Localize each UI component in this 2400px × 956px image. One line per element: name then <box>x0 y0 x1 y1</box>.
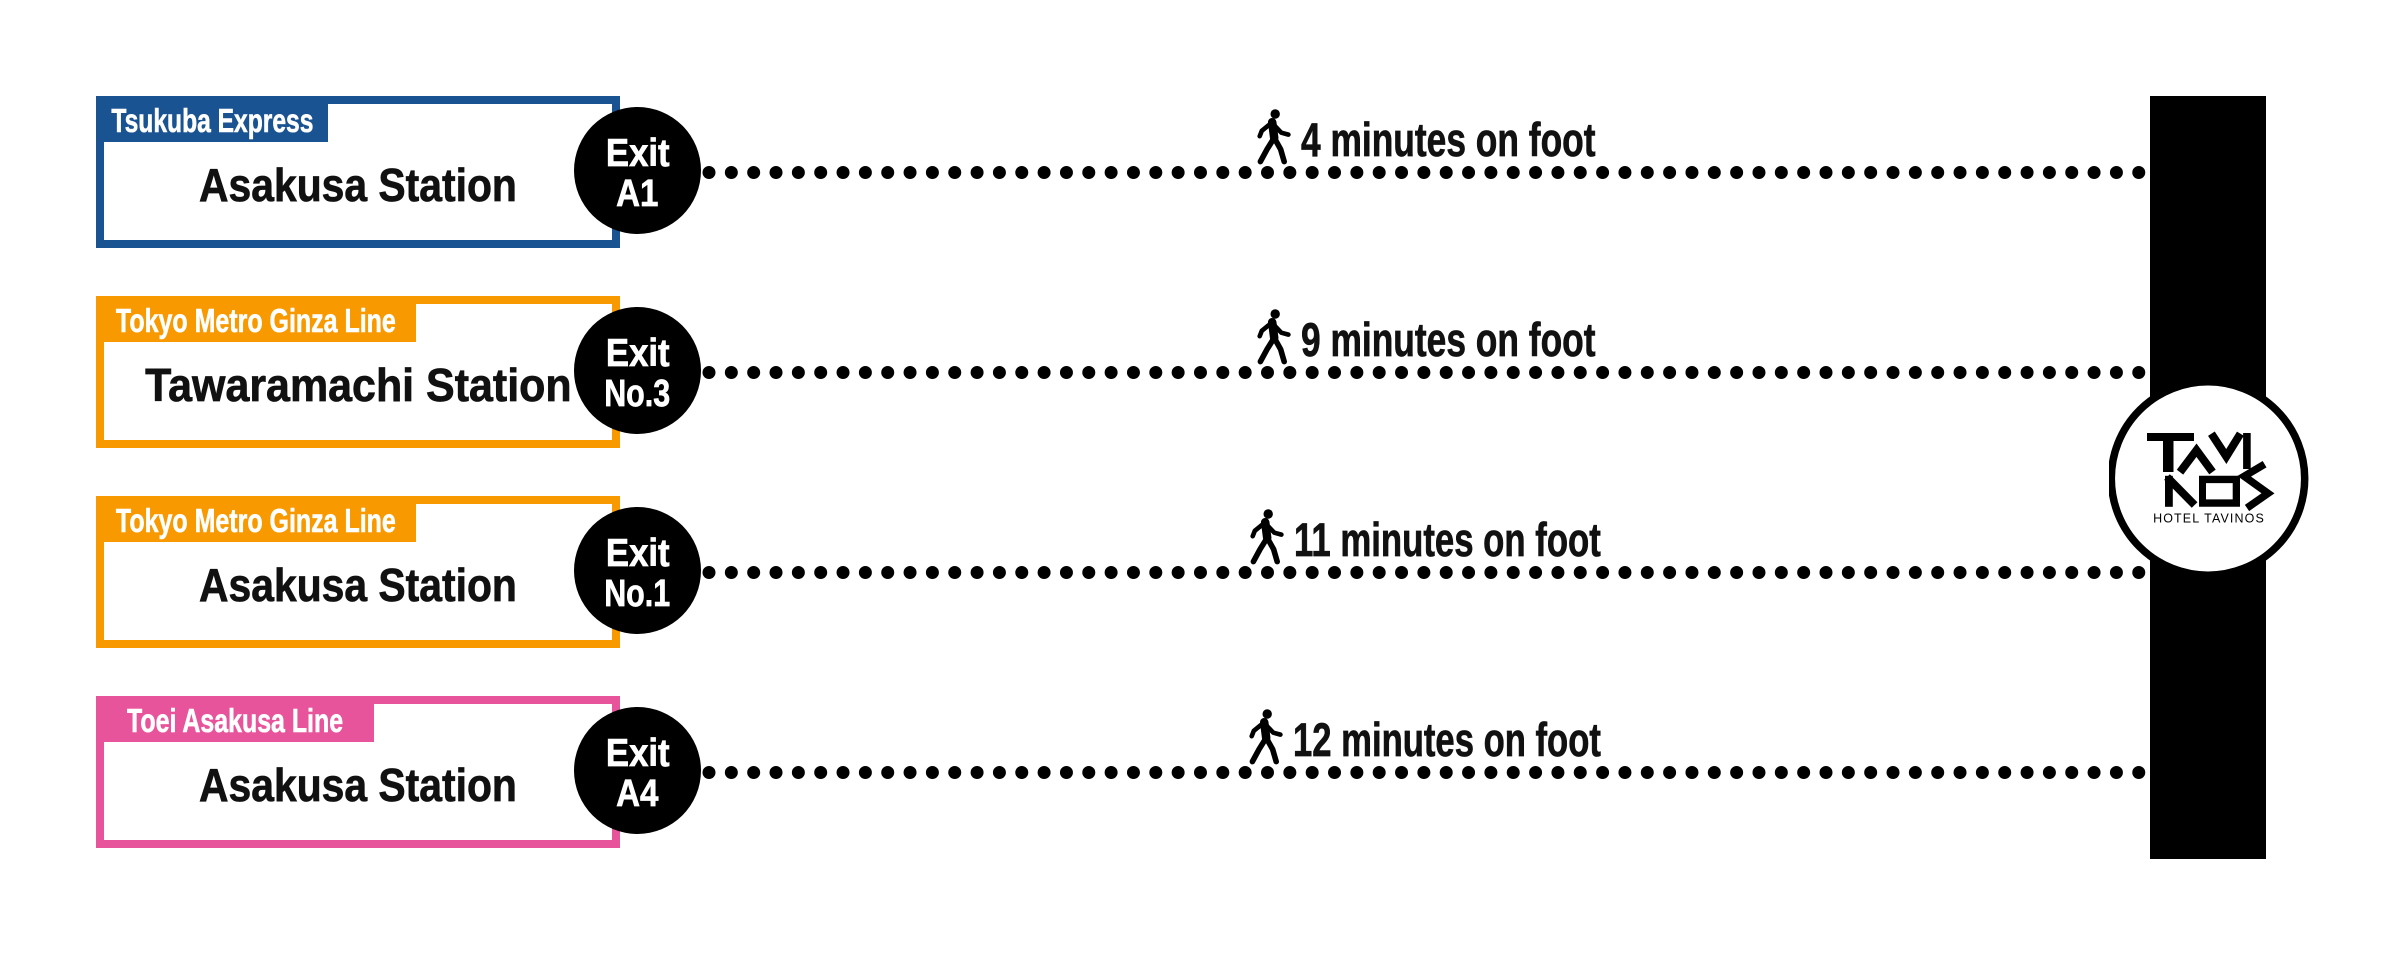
svg-text:HOTEL TAVINOS: HOTEL TAVINOS <box>2153 512 2265 526</box>
